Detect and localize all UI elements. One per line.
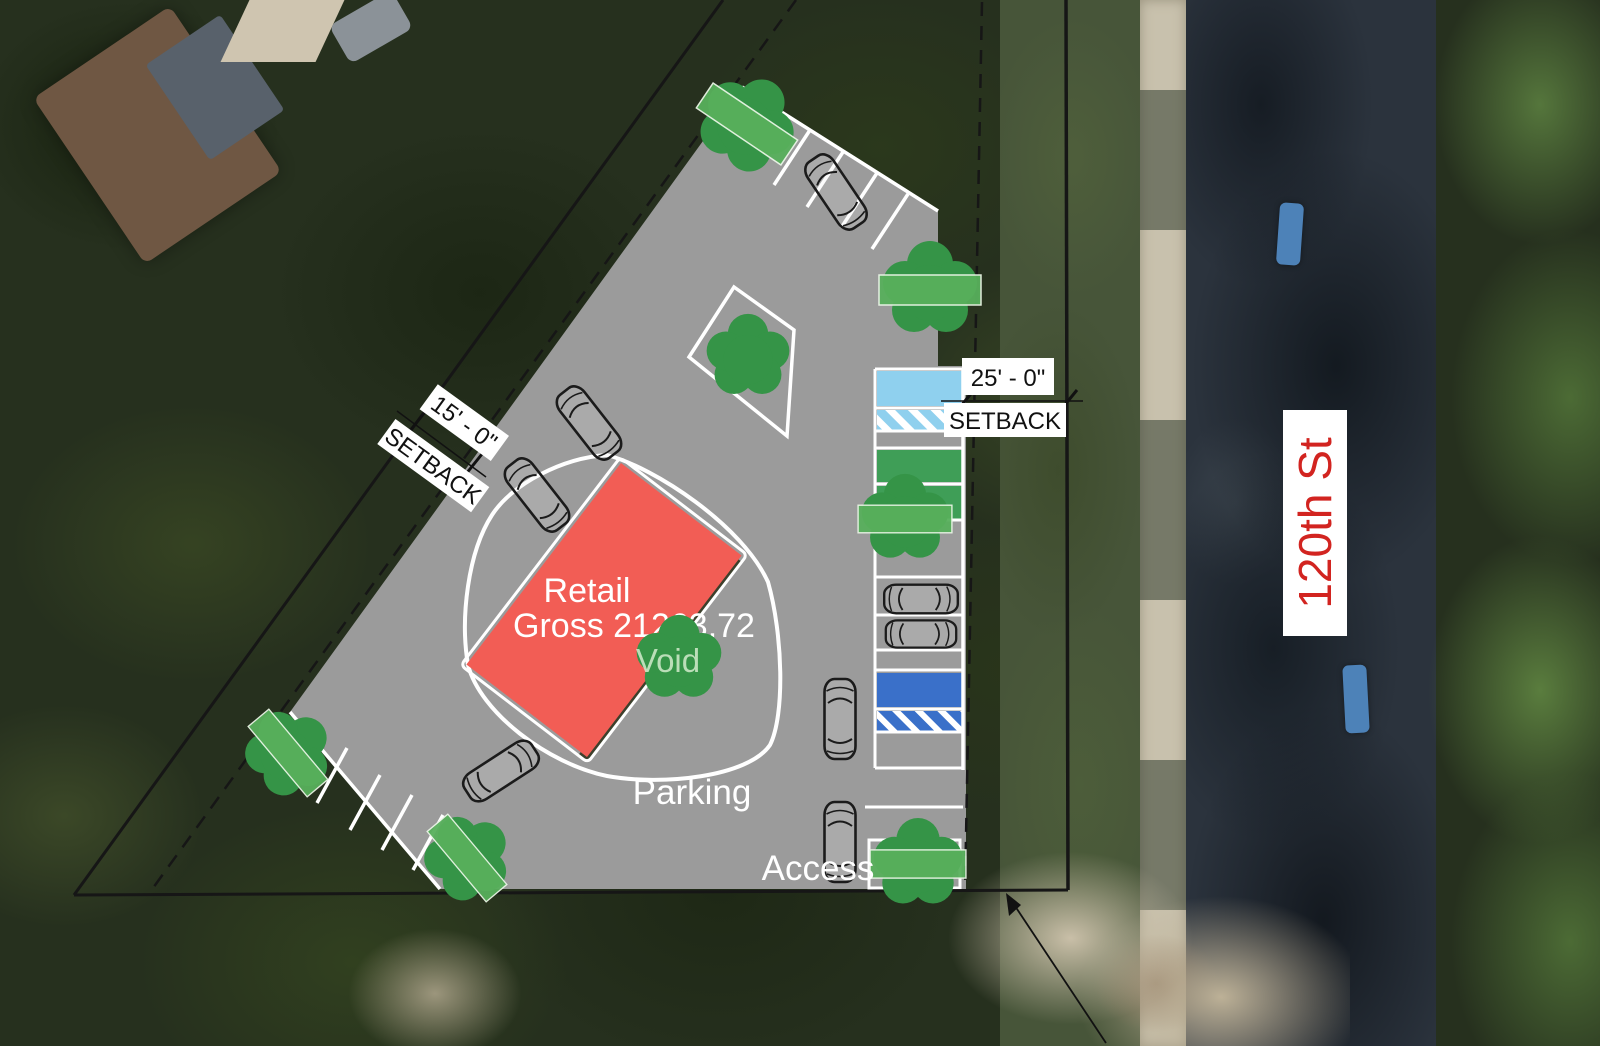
- setback-east-text: SETBACK: [949, 408, 1061, 435]
- setback-east-value: 25' - 0": [971, 365, 1045, 392]
- building-area-label: Gross 21263.72: [513, 607, 755, 645]
- property-line-east: [1066, 0, 1068, 890]
- car: [825, 679, 856, 759]
- street-name-tag: 120th St: [1283, 410, 1347, 636]
- site-plan-drawing: Retail Gross 21263.72: [0, 0, 1600, 1046]
- car: [884, 585, 958, 614]
- access-leader-arrow: [1006, 893, 1106, 1043]
- access-label: Access: [762, 849, 875, 888]
- building-void-label: Void: [636, 642, 700, 679]
- site-plan-screenshot: { "plan": { "building_label": { "name": …: [0, 0, 1600, 1046]
- setback-east-dimension: 25' - 0": [962, 358, 1054, 395]
- street-name-text: 120th St: [1289, 437, 1341, 609]
- stall-green: [877, 450, 963, 482]
- stall-accessible-blue: [877, 673, 963, 707]
- setback-line-east: [965, 2, 982, 889]
- building-name-label: Retail: [544, 572, 631, 610]
- parking-label: Parking: [633, 773, 752, 812]
- car: [886, 620, 956, 647]
- stall-blue-hatched: [877, 711, 963, 731]
- setback-east-label: SETBACK: [944, 403, 1066, 437]
